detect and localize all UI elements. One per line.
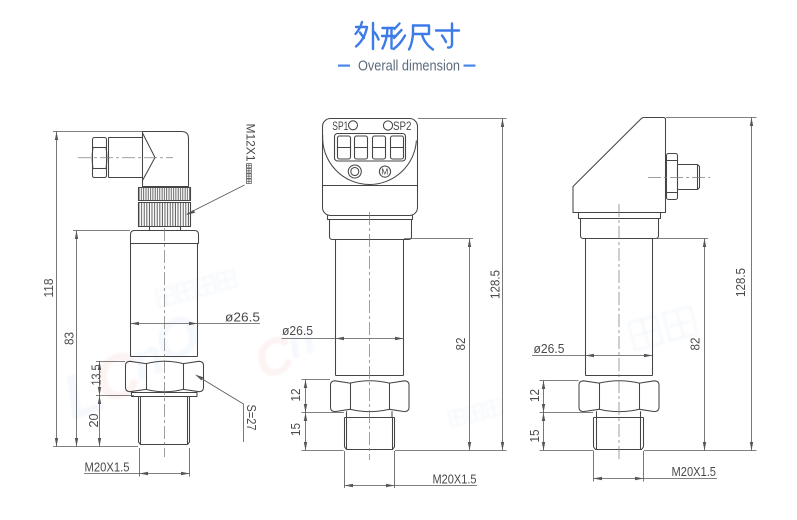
svg-text:128.5: 128.5: [489, 270, 503, 299]
svg-text:82: 82: [689, 337, 703, 350]
svg-text:SP1: SP1: [332, 119, 348, 133]
svg-text:SP2: SP2: [393, 119, 412, 133]
svg-text:M20X1.5: M20X1.5: [85, 460, 130, 475]
svg-text:Overall dimension: Overall dimension: [358, 59, 460, 75]
svg-text:128.5: 128.5: [734, 268, 748, 297]
svg-text:13.5: 13.5: [90, 364, 104, 385]
svg-text:ø26.5: ø26.5: [225, 310, 260, 325]
svg-text:M20X1.5: M20X1.5: [672, 464, 717, 479]
svg-text:15: 15: [528, 429, 542, 442]
svg-text:15: 15: [289, 423, 303, 436]
svg-text:M12X1: M12X1: [244, 124, 256, 162]
svg-text:20: 20: [87, 413, 101, 427]
svg-text:S=27: S=27: [244, 405, 258, 431]
svg-text:83: 83: [63, 332, 77, 345]
svg-text:M: M: [381, 167, 388, 177]
svg-text:ø26.5: ø26.5: [534, 341, 565, 356]
svg-text:M20X1.5: M20X1.5: [433, 471, 477, 486]
svg-text:ø26.5: ø26.5: [282, 323, 313, 338]
svg-text:12: 12: [528, 389, 542, 402]
svg-text:82: 82: [454, 337, 468, 350]
svg-text:12: 12: [289, 388, 303, 401]
svg-text:118: 118: [42, 278, 56, 297]
